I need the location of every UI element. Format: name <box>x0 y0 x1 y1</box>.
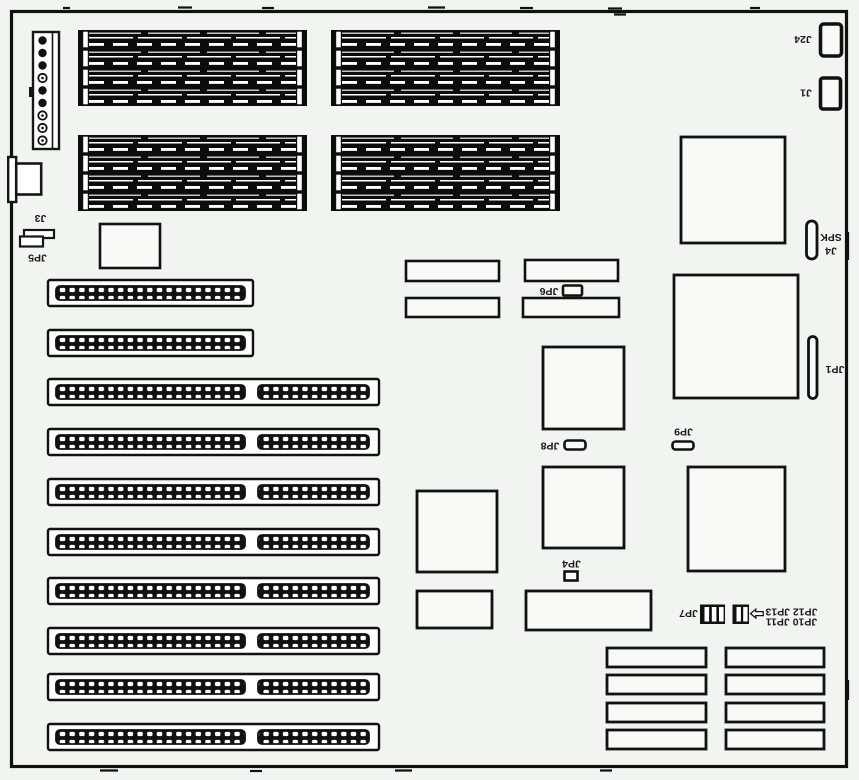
svg-text:JP10 JP11: JP10 JP11 <box>766 616 818 628</box>
svg-text:JP8: JP8 <box>541 440 560 452</box>
svg-text:JP1: JP1 <box>826 363 845 375</box>
svg-text:JP7: JP7 <box>679 607 698 619</box>
svg-text:JP4: JP4 <box>562 558 581 570</box>
svg-text:J4: J4 <box>825 245 837 257</box>
svg-text:JP5: JP5 <box>28 252 47 264</box>
svg-text:JP9: JP9 <box>674 426 693 438</box>
svg-text:J1: J1 <box>800 87 812 99</box>
svg-text:J3: J3 <box>35 212 47 224</box>
svg-text:SPK: SPK <box>820 231 842 243</box>
svg-text:J24: J24 <box>794 33 812 45</box>
svg-text:JP6: JP6 <box>540 285 559 297</box>
